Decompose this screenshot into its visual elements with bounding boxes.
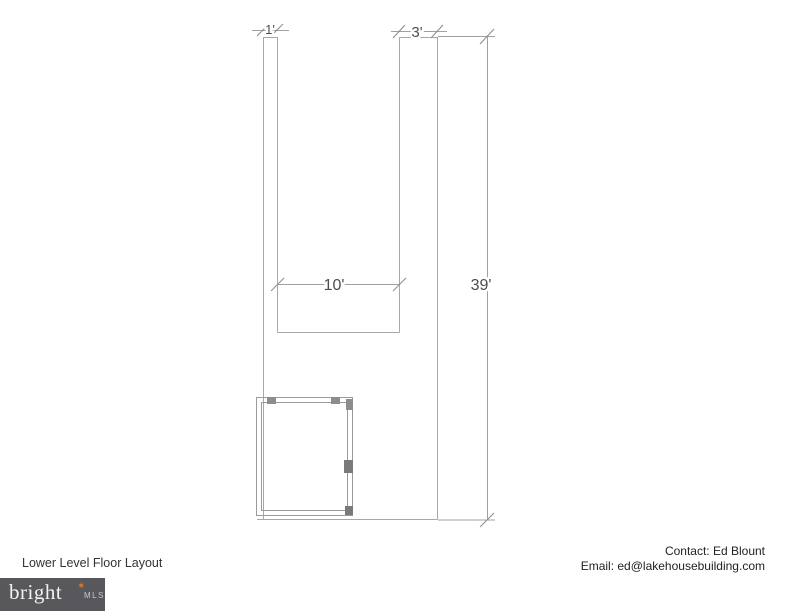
dimension-label-3ft: 3' xyxy=(411,24,422,41)
dimension-label-1ft: 1' xyxy=(265,22,275,37)
wall-break-mark xyxy=(346,399,353,410)
dimension-total-height: 39' xyxy=(438,29,495,527)
page-title: Lower Level Floor Layout xyxy=(22,556,162,570)
dimension-opening: 10' xyxy=(271,277,406,294)
dimension-label-10ft: 10' xyxy=(324,277,345,294)
logo-suffix-text: MLS xyxy=(84,591,105,600)
floor-plan-drawing: 1' 3' 10' 39' xyxy=(0,0,791,611)
room-wall-outer xyxy=(257,398,353,516)
corner-mark xyxy=(345,506,353,515)
door-mark xyxy=(344,460,353,473)
contact-block: Contact: Ed Blount Email: ed@lakehousebu… xyxy=(581,544,765,573)
dimension-label-39ft: 39' xyxy=(471,277,492,294)
contact-name: Contact: Ed Blount xyxy=(581,544,765,559)
dimension-left-column: 1' xyxy=(252,22,289,37)
contact-email: Email: ed@lakehousebuilding.com xyxy=(581,559,765,574)
small-room xyxy=(257,397,354,516)
wall-break-mark xyxy=(267,397,276,404)
wall-break-mark xyxy=(331,397,340,404)
room-wall-inner xyxy=(262,403,348,511)
logo-brand-text: bright xyxy=(9,580,62,605)
brightmls-logo: bright ✶ MLS xyxy=(0,578,105,611)
